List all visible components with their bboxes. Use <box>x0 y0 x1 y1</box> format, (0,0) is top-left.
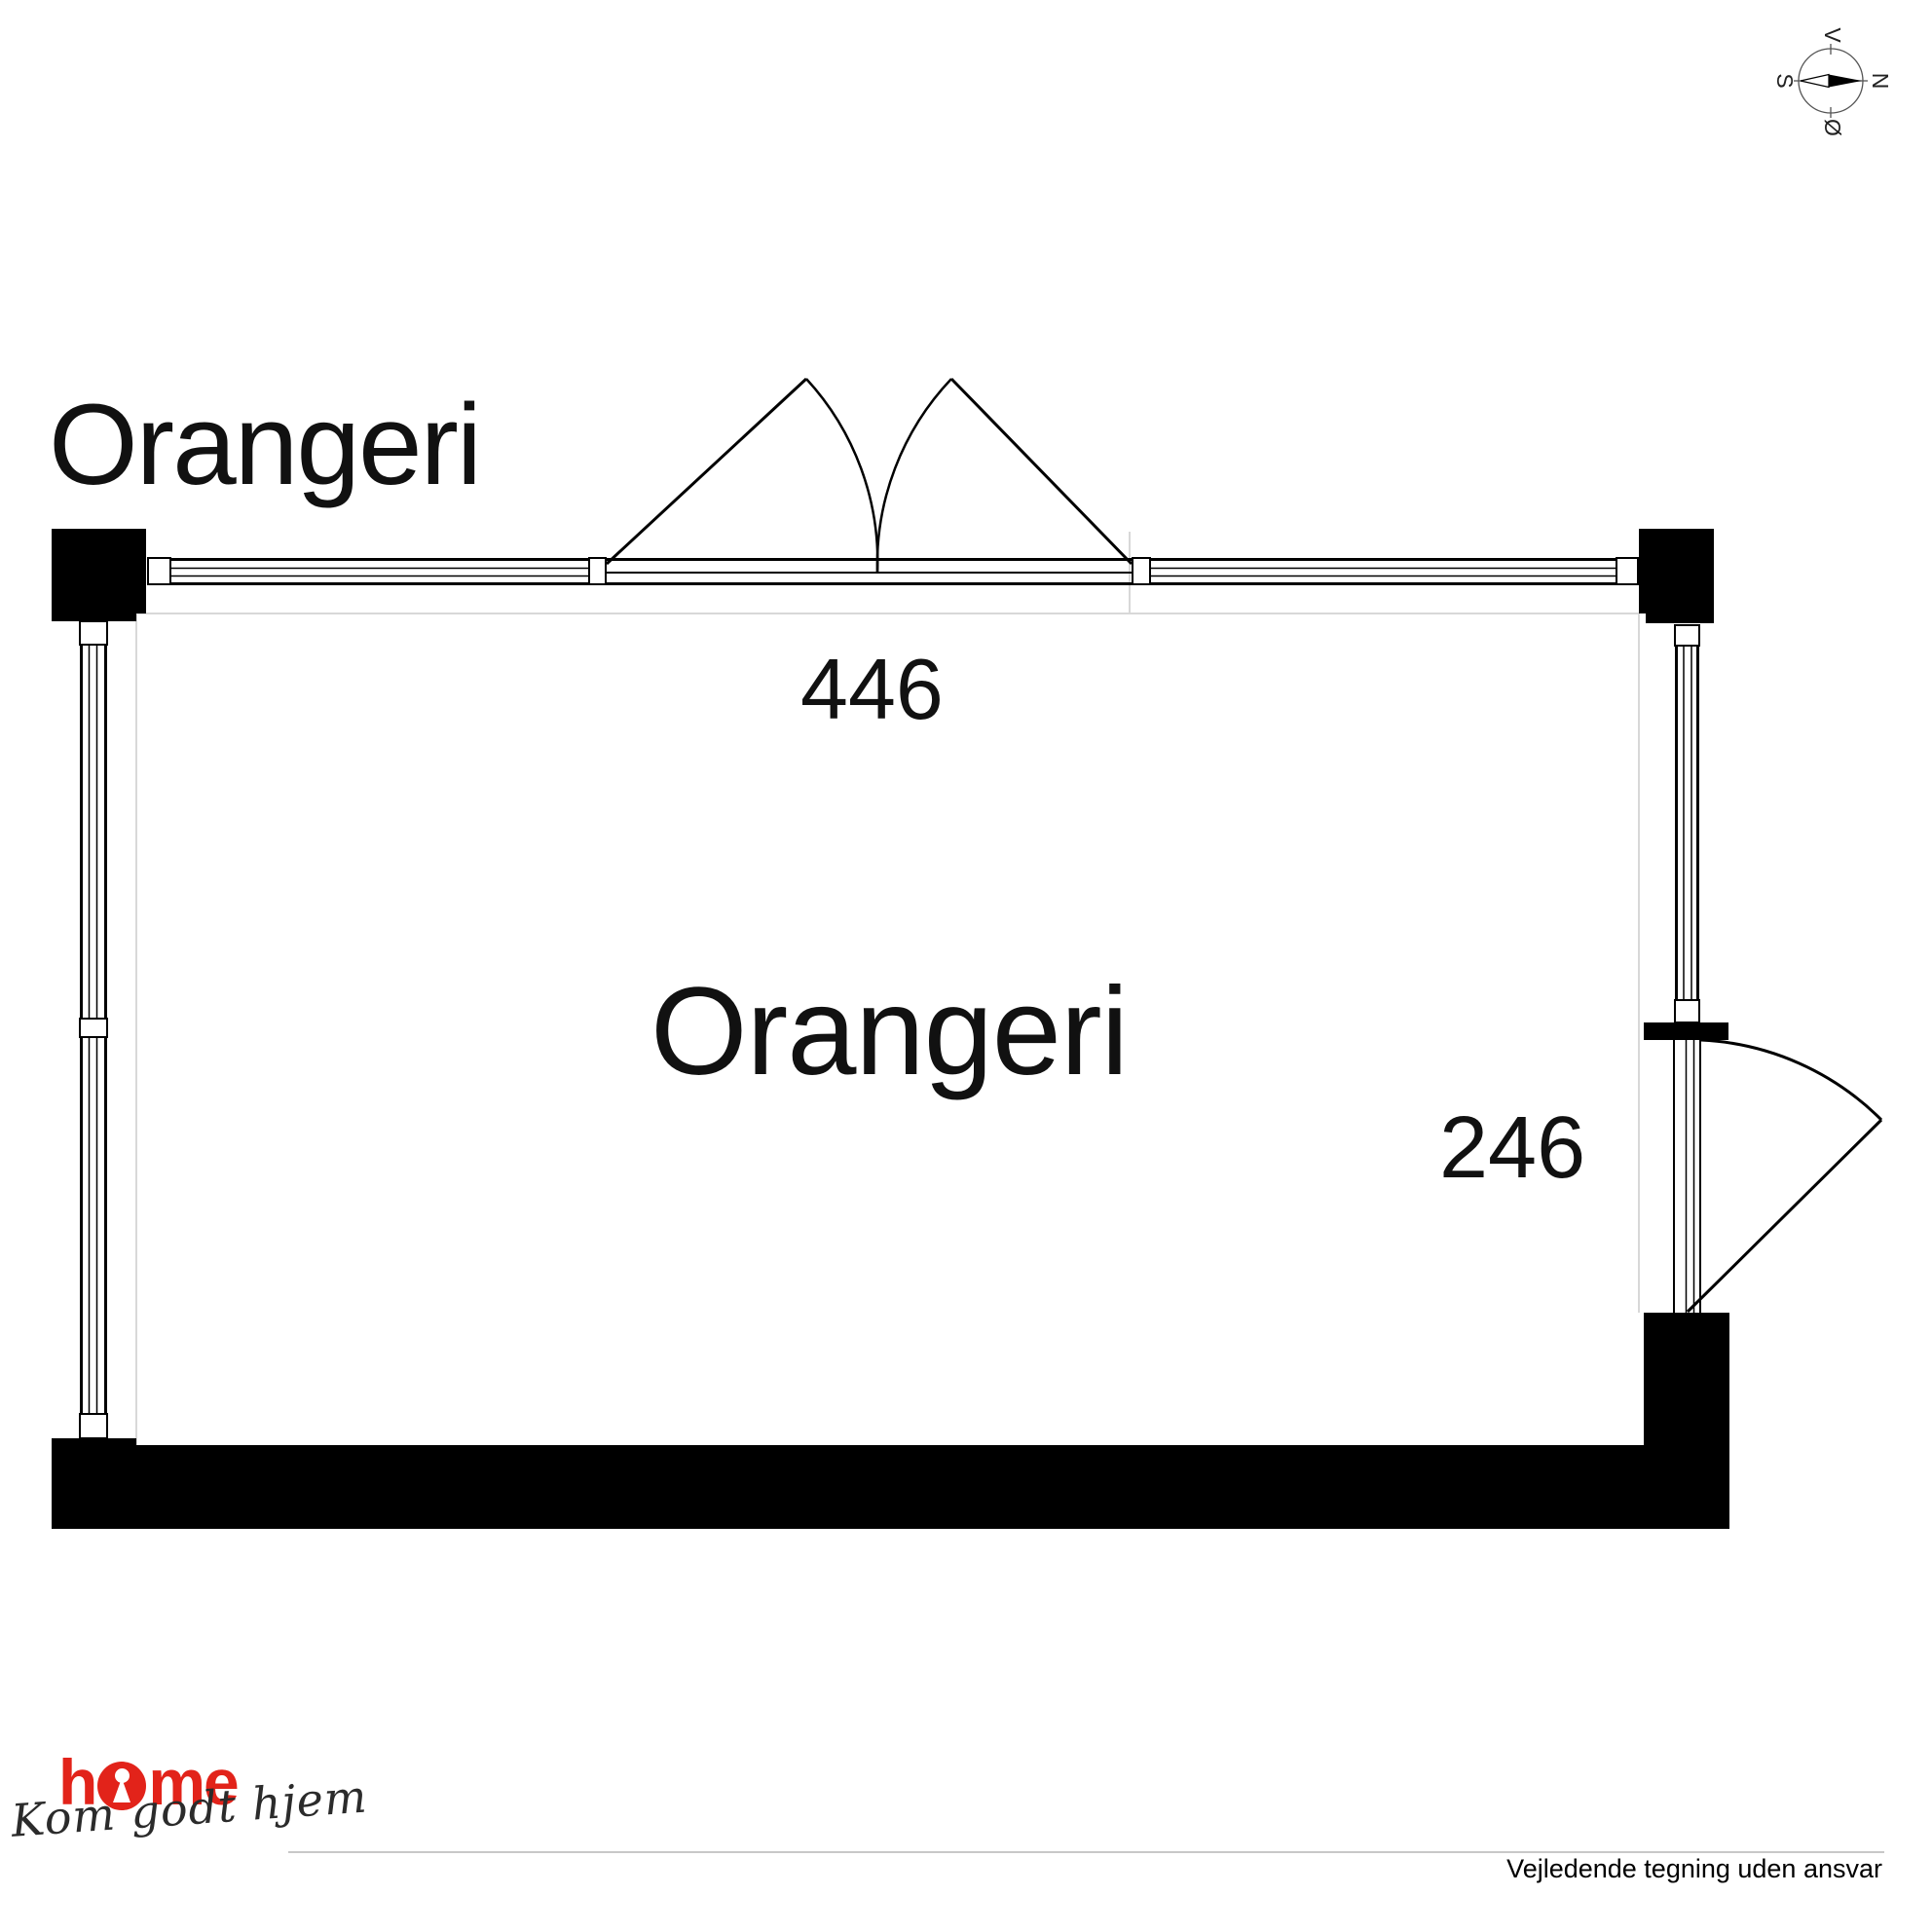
window-cap <box>148 558 170 584</box>
compass-needle-north <box>1829 75 1862 88</box>
door-leaf-left <box>607 379 806 564</box>
door-leaf <box>1688 1120 1881 1312</box>
window-cap <box>80 1414 107 1438</box>
window-mullion <box>589 558 606 584</box>
compass-label-north: N <box>1868 73 1893 90</box>
compass-rose: V N S Ø <box>1772 27 1893 136</box>
window-cap <box>1675 625 1699 646</box>
wall-bottom <box>136 1445 1644 1529</box>
door-leaf-right <box>951 379 1132 564</box>
door-swing-right <box>877 379 951 573</box>
window-mullion <box>80 1019 107 1037</box>
compass-label-east: Ø <box>1820 119 1845 136</box>
door-swing <box>1701 1040 1881 1120</box>
dimension-width: 446 <box>800 647 944 732</box>
dimension-depth: 246 <box>1439 1104 1585 1192</box>
window-cap <box>1616 558 1638 584</box>
left-wall-band <box>80 621 107 1438</box>
wall-corner-top-right <box>1639 529 1714 623</box>
single-door-right <box>1674 1040 1881 1313</box>
window-cap <box>80 621 107 645</box>
room-label: Orangeri <box>650 970 1128 1095</box>
footer-divider-line <box>288 1851 1884 1853</box>
compass-needle-tail <box>1801 75 1829 88</box>
door-lintel-right <box>1644 1022 1728 1040</box>
top-wall-band <box>148 558 1638 584</box>
floorplan-page: V N S Ø Orangeri Orangeri 446 246 hme Ko… <box>0 0 1932 1932</box>
compass-label-west: V <box>1820 27 1845 43</box>
right-wall-band <box>1675 625 1699 1022</box>
wall-corner-top-left <box>52 529 146 621</box>
window-cap <box>1675 1000 1699 1022</box>
compass-label-south: S <box>1772 73 1798 88</box>
door-swing-left <box>806 379 877 573</box>
wall-corner-bottom-right <box>1644 1313 1729 1529</box>
wall-corner-bottom-left <box>52 1438 136 1529</box>
disclaimer-text: Vejledende tegning uden ansvar <box>1169 1856 1882 1882</box>
double-door-top <box>607 379 1132 573</box>
window-mullion <box>1133 558 1150 584</box>
page-title: Orangeri <box>49 388 480 502</box>
